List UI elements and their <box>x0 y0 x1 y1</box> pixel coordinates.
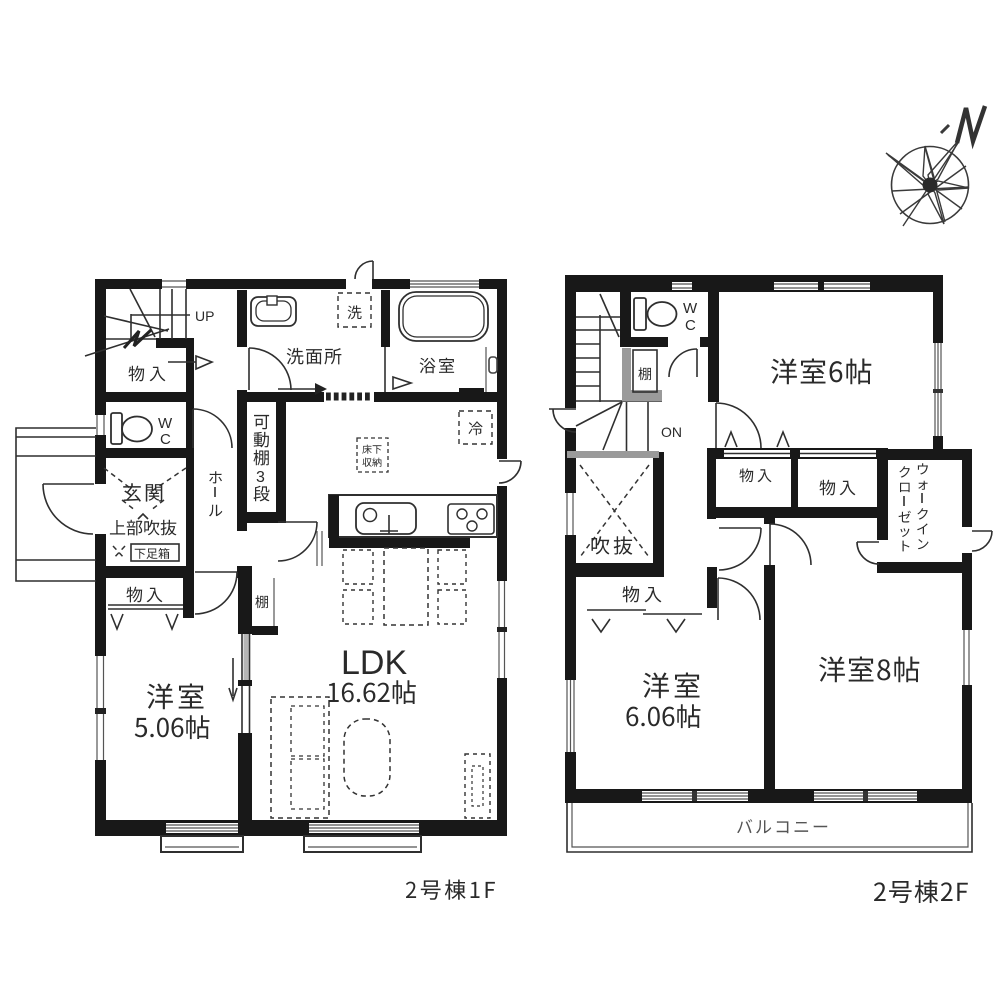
svg-text:W: W <box>683 300 698 317</box>
svg-text:UP: UP <box>195 308 214 324</box>
svg-text:C: C <box>685 317 696 334</box>
svg-text:3: 3 <box>256 469 265 486</box>
svg-text:C: C <box>160 431 171 448</box>
svg-text:W: W <box>158 415 173 432</box>
svg-text:ON: ON <box>661 424 682 440</box>
svg-text:LDK: LDK <box>341 644 407 682</box>
